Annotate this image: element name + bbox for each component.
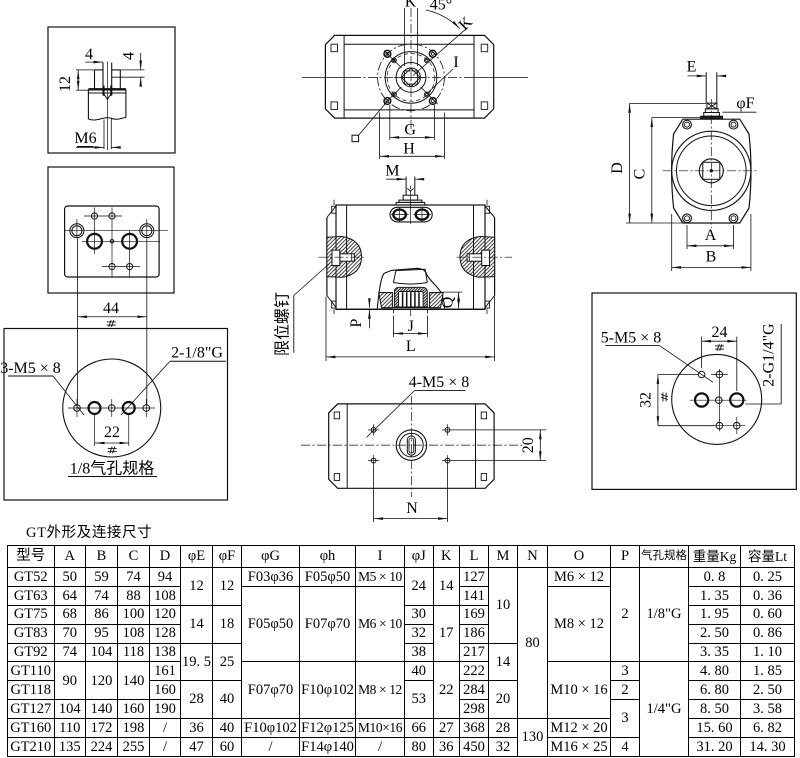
- svg-text:H: H: [403, 141, 415, 158]
- svg-text:E: E: [687, 59, 697, 76]
- svg-text:B: B: [706, 249, 717, 266]
- svg-text:3-M5 × 8: 3-M5 × 8: [0, 360, 61, 377]
- svg-text:Q: Q: [440, 296, 457, 308]
- svg-text:C: C: [632, 169, 649, 180]
- svg-text:24: 24: [712, 324, 728, 341]
- svg-text:I: I: [453, 54, 458, 71]
- svg-text:D: D: [609, 162, 626, 174]
- svg-text:J: J: [408, 318, 414, 335]
- svg-text:4: 4: [85, 46, 93, 63]
- svg-text:限位螺钉: 限位螺钉: [274, 292, 292, 356]
- svg-text:M6: M6: [74, 130, 96, 147]
- svg-text:K: K: [456, 13, 477, 34]
- svg-text:φF: φF: [736, 95, 754, 112]
- svg-text:1/8气孔规格: 1/8气孔规格: [70, 460, 154, 478]
- svg-text:5-M5 × 8: 5-M5 × 8: [601, 330, 662, 347]
- svg-text:2-G1/4"G: 2-G1/4"G: [761, 323, 778, 387]
- svg-text:A: A: [705, 227, 717, 244]
- svg-text:4-M5 × 8: 4-M5 × 8: [409, 374, 470, 391]
- svg-text:L: L: [406, 338, 416, 355]
- svg-text:32: 32: [638, 392, 655, 408]
- svg-text:P: P: [348, 318, 365, 327]
- svg-text:4: 4: [120, 52, 137, 60]
- svg-text:44: 44: [103, 300, 119, 317]
- svg-text:G: G: [404, 122, 416, 139]
- svg-text:K: K: [405, 0, 417, 11]
- svg-text:22: 22: [104, 424, 120, 441]
- svg-text:12: 12: [57, 76, 74, 92]
- svg-text:M: M: [385, 163, 399, 180]
- svg-text:45°: 45°: [430, 0, 452, 14]
- svg-text:2-1/8"G: 2-1/8"G: [171, 345, 223, 362]
- svg-text:N: N: [406, 500, 418, 517]
- svg-text:20: 20: [520, 437, 537, 453]
